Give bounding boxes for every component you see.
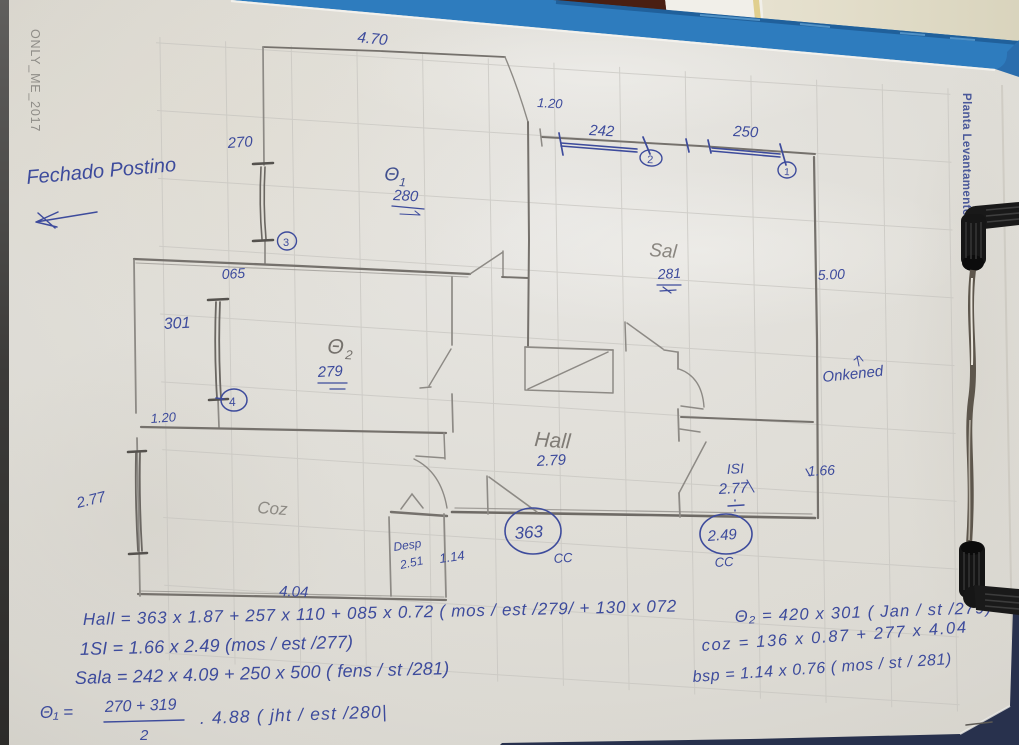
svg-text:2.79: 2.79	[535, 451, 567, 470]
svg-text:363: 363	[514, 522, 544, 543]
svg-text:Planta Levantamento: Planta Levantamento	[960, 93, 972, 216]
svg-text:281: 281	[656, 265, 681, 282]
svg-text:280: 280	[392, 187, 420, 205]
svg-text:Hall: Hall	[534, 428, 573, 454]
svg-text:Coz: Coz	[257, 498, 289, 519]
svg-text:4: 4	[229, 395, 236, 409]
svg-text:ISI: ISI	[726, 460, 744, 477]
svg-text:3: 3	[283, 237, 289, 249]
svg-text:4.04: 4.04	[279, 583, 309, 601]
svg-text:301: 301	[163, 315, 191, 333]
svg-text:CC: CC	[553, 550, 573, 566]
svg-text:Θ: Θ	[327, 335, 345, 359]
svg-text:270: 270	[226, 133, 254, 152]
svg-text:065: 065	[221, 265, 245, 282]
svg-text:CC: CC	[714, 554, 734, 570]
svg-text:2: 2	[647, 154, 654, 166]
svg-text:1.66: 1.66	[807, 462, 835, 479]
svg-text:5.00: 5.00	[817, 266, 845, 283]
svg-text:ONLY_ME_2017: ONLY_ME_2017	[28, 29, 42, 132]
svg-text:Sal: Sal	[649, 240, 679, 263]
svg-text:Θ: Θ	[384, 164, 400, 186]
svg-text:250: 250	[732, 123, 760, 141]
svg-text:1.20: 1.20	[150, 409, 177, 426]
svg-text:242: 242	[588, 122, 616, 140]
svg-text:1.20: 1.20	[537, 95, 564, 111]
svg-text:1: 1	[784, 167, 791, 178]
svg-text:279: 279	[316, 363, 344, 381]
svg-text:270 + 319: 270 + 319	[104, 697, 177, 717]
svg-text:2.49: 2.49	[706, 526, 738, 545]
svg-text:2: 2	[139, 727, 149, 744]
svg-text:Θ₁ =: Θ₁ =	[40, 702, 74, 722]
svg-text:2.77: 2.77	[717, 479, 749, 498]
svg-text:4.70: 4.70	[357, 29, 389, 49]
